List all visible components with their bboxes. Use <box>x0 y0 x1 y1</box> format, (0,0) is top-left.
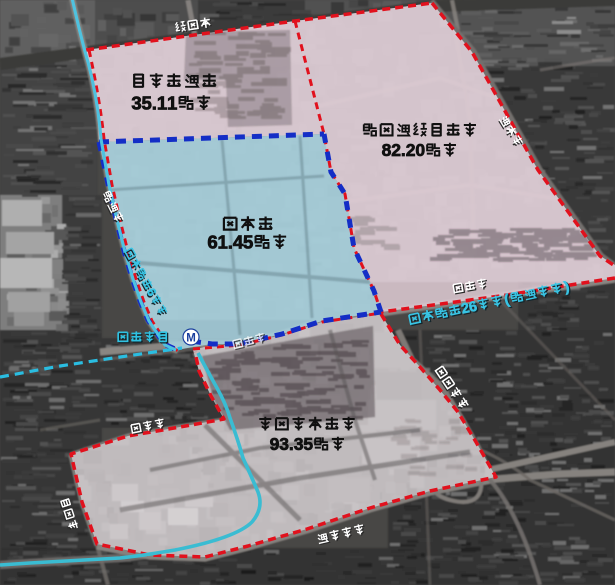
svg-text:2: 2 <box>406 140 416 160</box>
svg-text:0: 0 <box>415 140 425 160</box>
svg-text:1: 1 <box>167 92 177 113</box>
svg-text:M: M <box>186 333 196 345</box>
svg-text:5: 5 <box>141 92 151 113</box>
svg-text:1: 1 <box>217 231 227 252</box>
svg-text:3: 3 <box>294 434 304 454</box>
svg-text:6: 6 <box>207 231 217 252</box>
svg-text:2: 2 <box>391 140 401 160</box>
svg-text:8: 8 <box>382 140 392 160</box>
svg-text:1: 1 <box>157 92 167 113</box>
svg-text:3: 3 <box>131 92 141 113</box>
svg-text:3: 3 <box>279 434 289 454</box>
svg-text:5: 5 <box>243 231 253 252</box>
svg-text:5: 5 <box>303 434 313 454</box>
svg-text:9: 9 <box>270 434 280 454</box>
